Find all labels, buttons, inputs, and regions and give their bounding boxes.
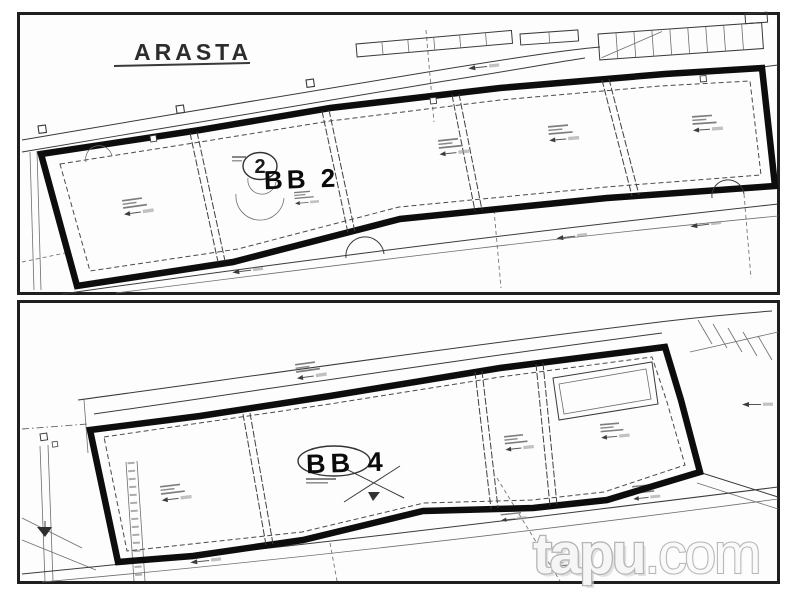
site-plans-figure: ARASTA 2 BB 2 (0, 0, 800, 600)
watermark-text: tapu.com (533, 522, 759, 586)
bottom-plan-block-badge: BB 4 (298, 446, 388, 479)
watermark-brand: tapu (533, 522, 645, 586)
top-plan-area-title: ARASTA (134, 39, 252, 65)
top-plan-panel: ARASTA 2 BB 2 (19, 12, 779, 294)
watermark-tld: .com (645, 522, 760, 586)
top-plan-block-label: BB 2 (263, 163, 339, 196)
bottom-plan-block-label: BB 4 (306, 447, 389, 480)
watermark-logo: tapu.com tapu.com (533, 522, 762, 589)
screenshot-root: ARASTA 2 BB 2 (0, 0, 800, 600)
